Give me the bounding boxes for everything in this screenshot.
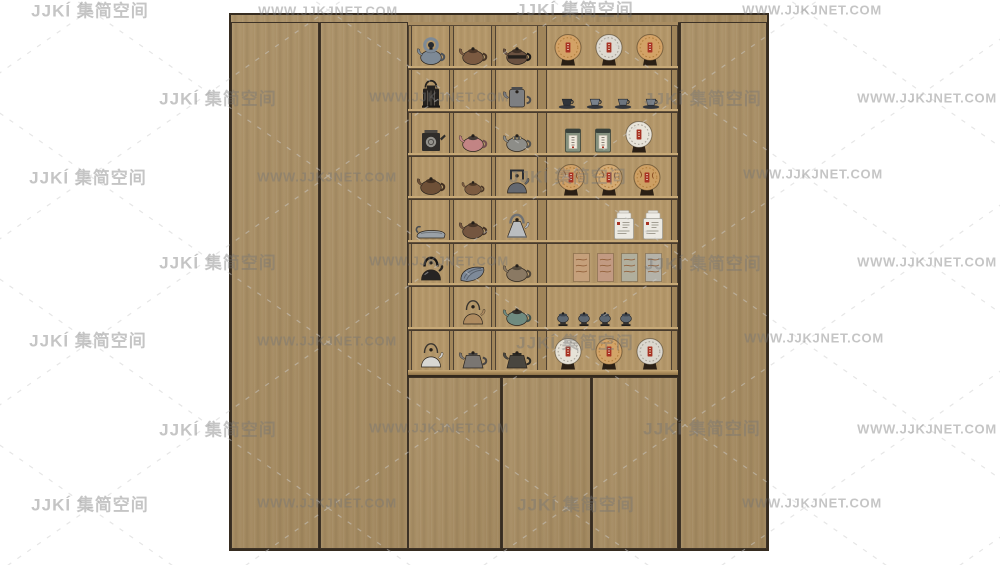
wrapped-tea-brick bbox=[596, 252, 615, 283]
white-tea-cake bbox=[552, 336, 584, 370]
wrapped-tea-brick bbox=[620, 252, 639, 283]
left-door-2 bbox=[320, 22, 408, 549]
shelf-cell bbox=[496, 157, 537, 197]
display-shelf-grid bbox=[408, 22, 678, 377]
shelf-cell bbox=[454, 287, 491, 327]
shelf-cell bbox=[412, 113, 449, 153]
tea-cake-disc bbox=[634, 32, 666, 66]
shelf-cell bbox=[496, 26, 537, 66]
blue-grey-loop-teapot bbox=[412, 32, 449, 66]
covered-cup bbox=[618, 310, 634, 327]
shelf-cell bbox=[547, 26, 671, 66]
tea-cake-disc bbox=[552, 32, 584, 66]
leaf-dish bbox=[454, 251, 491, 283]
tea-boat-scoop bbox=[412, 209, 449, 240]
shelf-cell bbox=[547, 200, 671, 240]
shelf-cell bbox=[412, 200, 449, 240]
watermark-logo: JJKÍ 集简空间 bbox=[31, 0, 149, 22]
shelf-bottom-rail bbox=[408, 370, 678, 377]
shelf-cell bbox=[454, 200, 491, 240]
shelf-cell bbox=[496, 244, 537, 284]
wrapped-tea-brick bbox=[644, 252, 663, 283]
shelf-cell bbox=[547, 157, 671, 197]
grey-metal-pot bbox=[497, 75, 537, 109]
shelf-cell bbox=[547, 113, 671, 153]
shelf-cell bbox=[454, 113, 491, 153]
white-tea-canister bbox=[612, 207, 636, 240]
shelf-cell bbox=[496, 200, 537, 240]
dark-banded-teapot bbox=[497, 32, 537, 66]
tea-cake-disc bbox=[555, 162, 587, 196]
shelf-cell bbox=[412, 244, 449, 284]
watermark-logo: JJKÍ 集简空间 bbox=[31, 491, 149, 516]
watermark-url: WWW.JJKJNET.COM bbox=[857, 422, 997, 437]
brown-teapot bbox=[454, 32, 491, 66]
shelf-cell bbox=[412, 331, 449, 371]
tea-tin bbox=[563, 119, 583, 153]
shelf-cell bbox=[454, 26, 491, 66]
watermark-url: WWW.JJKJNET.COM bbox=[857, 255, 997, 270]
tea-cake-disc bbox=[631, 162, 663, 196]
tea-display-cabinet bbox=[229, 13, 769, 551]
tan-wire-handle-kettle bbox=[454, 291, 491, 327]
pink-teapot bbox=[454, 119, 491, 153]
white-tea-canister bbox=[641, 207, 665, 240]
lower-door-3 bbox=[592, 377, 678, 549]
shelf-cell bbox=[547, 287, 671, 327]
shelf-cell bbox=[496, 113, 537, 153]
watermark-url: WWW.JJKJNET.COM bbox=[857, 91, 997, 106]
teacup bbox=[641, 96, 662, 109]
left-door-1 bbox=[231, 22, 319, 549]
right-door bbox=[680, 22, 767, 549]
shelf-cell bbox=[454, 157, 491, 197]
silver-kettle bbox=[497, 204, 537, 240]
covered-cup bbox=[555, 310, 571, 327]
shelf-cell bbox=[412, 157, 449, 197]
shelf-cell bbox=[412, 70, 449, 110]
shelf-cell bbox=[547, 331, 671, 371]
covered-cup bbox=[576, 310, 592, 327]
teal-teapot bbox=[497, 293, 537, 327]
tea-cake-disc bbox=[593, 162, 625, 196]
lower-door-1 bbox=[408, 377, 501, 549]
small-brown-teapot bbox=[457, 169, 489, 196]
dark-angular-teapot bbox=[497, 336, 537, 370]
tea-cake-disc bbox=[593, 32, 625, 66]
shelf-cell bbox=[454, 244, 491, 284]
lower-door-2 bbox=[502, 377, 591, 549]
tea-cake-disc bbox=[593, 336, 625, 370]
black-lantern-teapot bbox=[412, 75, 449, 109]
shelf-cell bbox=[412, 26, 449, 66]
tea-tin bbox=[593, 119, 613, 153]
covered-cup bbox=[597, 310, 613, 327]
grey-brown-teapot bbox=[497, 249, 537, 283]
shelf-cell bbox=[496, 331, 537, 371]
watermark-logo: JJKÍ 集简空间 bbox=[29, 164, 147, 189]
striped-lid-teapot bbox=[497, 119, 537, 153]
shelf-cell bbox=[496, 70, 537, 110]
product-render-canvas: JJKÍ 集简空间WWW.JJKJNET.COMJJKÍ 集简空间WWW.JJK… bbox=[0, 0, 1000, 565]
wrapped-tea-brick bbox=[572, 252, 591, 283]
teacup bbox=[585, 96, 606, 109]
shelf-cell bbox=[547, 70, 671, 110]
brown-teapot bbox=[454, 206, 491, 240]
teacup bbox=[613, 96, 634, 109]
black-iron-teapot bbox=[412, 247, 449, 283]
teacup bbox=[557, 96, 578, 109]
shelf-cell bbox=[547, 244, 671, 284]
iron-kettle bbox=[497, 160, 537, 196]
shelf-cell bbox=[454, 331, 491, 371]
tea-caddy bbox=[412, 119, 449, 153]
brown-teapot bbox=[412, 162, 449, 196]
watermark-logo: JJKÍ 集简空间 bbox=[29, 327, 147, 352]
shelf-cell bbox=[496, 287, 537, 327]
white-kettle bbox=[412, 334, 449, 370]
grey-angular-teapot bbox=[454, 336, 491, 370]
white-tea-cake bbox=[623, 119, 655, 153]
white-tea-cake bbox=[634, 336, 666, 370]
